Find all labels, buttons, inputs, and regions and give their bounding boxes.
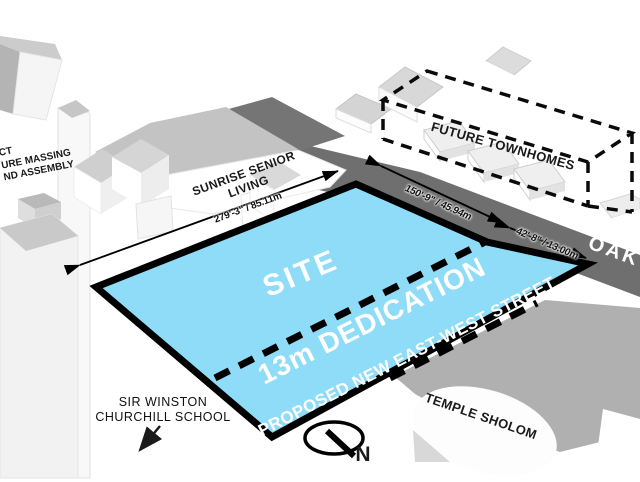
school-pointer-arrow [140, 426, 160, 450]
north-compass [305, 422, 363, 456]
site-plan-diagram: CT URE MASSING ND ASSEMBLY SUNRISE SENIO… [0, 0, 640, 482]
school-label-line1: SIR WINSTON [95, 395, 230, 410]
corner-building [0, 36, 62, 120]
compass-north-label: N [355, 443, 370, 467]
school-label: SIR WINSTON CHURCHILL SCHOOL [95, 395, 230, 425]
school-label-line2: CHURCHILL SCHOOL [95, 410, 230, 425]
